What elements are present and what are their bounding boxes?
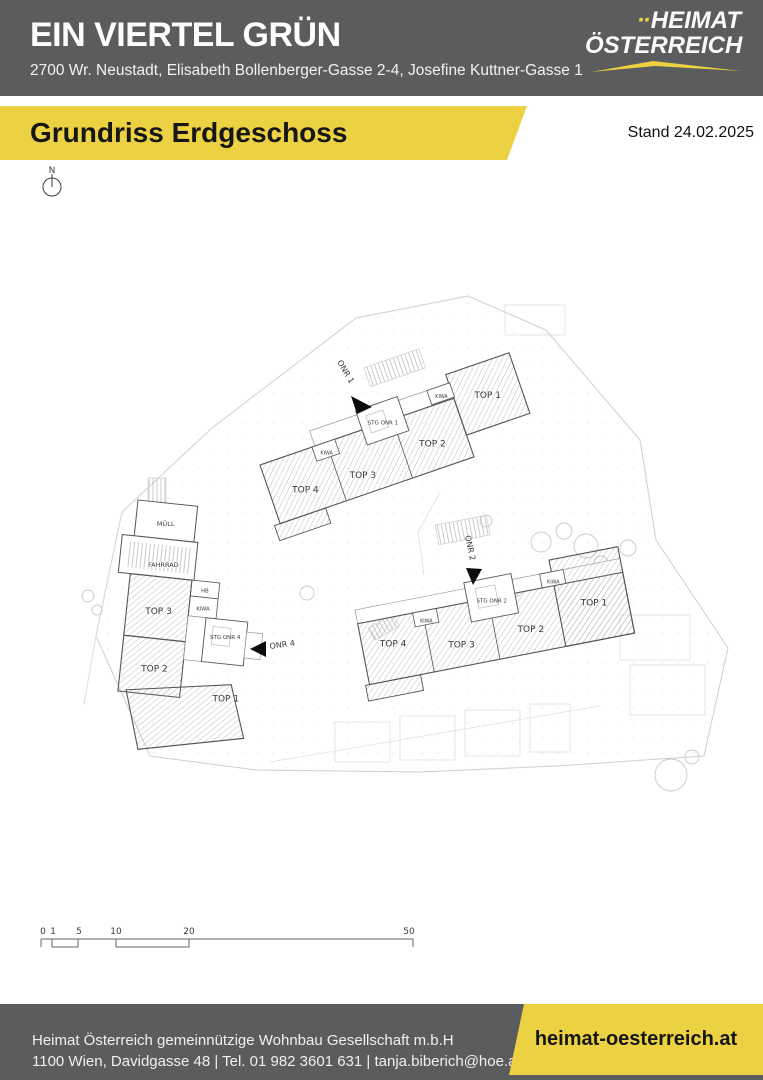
scale-1: 1 <box>50 927 56 937</box>
page: EIN VIERTEL GRÜN 2700 Wr. Neustadt, Elis… <box>0 0 763 1080</box>
footer-band: Heimat Österreich gemeinnützige Wohnbau … <box>0 1004 763 1080</box>
label-top2-onr1: TOP 2 <box>418 440 446 450</box>
logo-swoosh-icon <box>591 61 741 73</box>
website-badge: heimat-oesterreich.at <box>509 1004 763 1075</box>
label-top4-onr2: TOP 4 <box>379 639 407 649</box>
scale-50: 50 <box>403 927 415 937</box>
label-muell: MÜLL <box>157 519 175 528</box>
logo-word-heimat: HEIMAT <box>651 7 741 34</box>
label-top3-onr2: TOP 3 <box>447 640 475 650</box>
label-kiwa-onr4: KIWA <box>196 606 210 612</box>
label-stg-onr2: STG ONR 2 <box>477 599 507 605</box>
stand-date: Stand 24.02.2025 <box>628 124 754 142</box>
floor-plan-drawing: TOP 4 TOP 3 TOP 2 TOP 1 STG ONR 1 KIWA K… <box>0 160 763 1000</box>
logo-line-1: ··HEIMAT <box>585 8 741 33</box>
label-top1-onr2: TOP 1 <box>580 598 608 608</box>
north-label: N <box>49 166 56 176</box>
scale-bar: 0 1 5 10 20 50 <box>40 927 415 947</box>
label-kiwa-left-onr2: KIWA <box>420 619 433 625</box>
label-stg-onr4: STG ONR 4 <box>210 635 241 641</box>
header-band: EIN VIERTEL GRÜN 2700 Wr. Neustadt, Elis… <box>0 0 763 96</box>
footer-company: Heimat Österreich gemeinnützige Wohnbau … <box>32 1032 454 1049</box>
page-subtitle: Grundriss Erdgeschoss <box>30 117 347 149</box>
project-title: EIN VIERTEL GRÜN <box>30 16 341 55</box>
label-top1-onr1: TOP 1 <box>473 391 501 401</box>
label-top3-onr4: TOP 3 <box>144 607 172 617</box>
label-fahrrad: FAHRRAD <box>148 561 179 569</box>
label-top2-onr2: TOP 2 <box>517 625 545 635</box>
logo-umlaut-dots: ·· <box>637 7 649 34</box>
north-indicator: N <box>43 166 61 196</box>
label-kiwa-left-onr1: KIWA <box>320 451 333 457</box>
footer-contact: 1100 Wien, Davidgasse 48 | Tel. 01 982 3… <box>32 1053 521 1070</box>
label-top4-onr1: TOP 4 <box>291 486 319 496</box>
scale-20: 20 <box>183 927 195 937</box>
label-kiwa-right-onr2: KIWA <box>547 580 560 586</box>
project-address: 2700 Wr. Neustadt, Elisabeth Bollenberge… <box>30 62 583 80</box>
banner-shape: Grundriss Erdgeschoss <box>0 106 527 160</box>
stairwell-onr4 <box>201 618 247 666</box>
scale-5: 5 <box>76 927 82 937</box>
scale-10: 10 <box>110 927 122 937</box>
label-kiwa-right-onr1: KIWA <box>435 394 448 400</box>
label-stg-onr1: STG ONR 1 <box>368 421 398 427</box>
scale-0: 0 <box>40 927 46 937</box>
company-logo: ··HEIMAT ÖSTERREICH <box>585 8 741 73</box>
label-top3-onr1: TOP 3 <box>349 471 377 481</box>
logo-word-oesterreich: ÖSTERREICH <box>585 33 741 58</box>
label-top1-onr4: TOP 1 <box>211 694 239 704</box>
website-link[interactable]: heimat-oesterreich.at <box>535 1028 737 1051</box>
label-hb: HB <box>201 588 209 594</box>
banner-row: Grundriss Erdgeschoss Stand 24.02.2025 <box>0 106 763 160</box>
label-top2-onr4: TOP 2 <box>140 665 168 675</box>
